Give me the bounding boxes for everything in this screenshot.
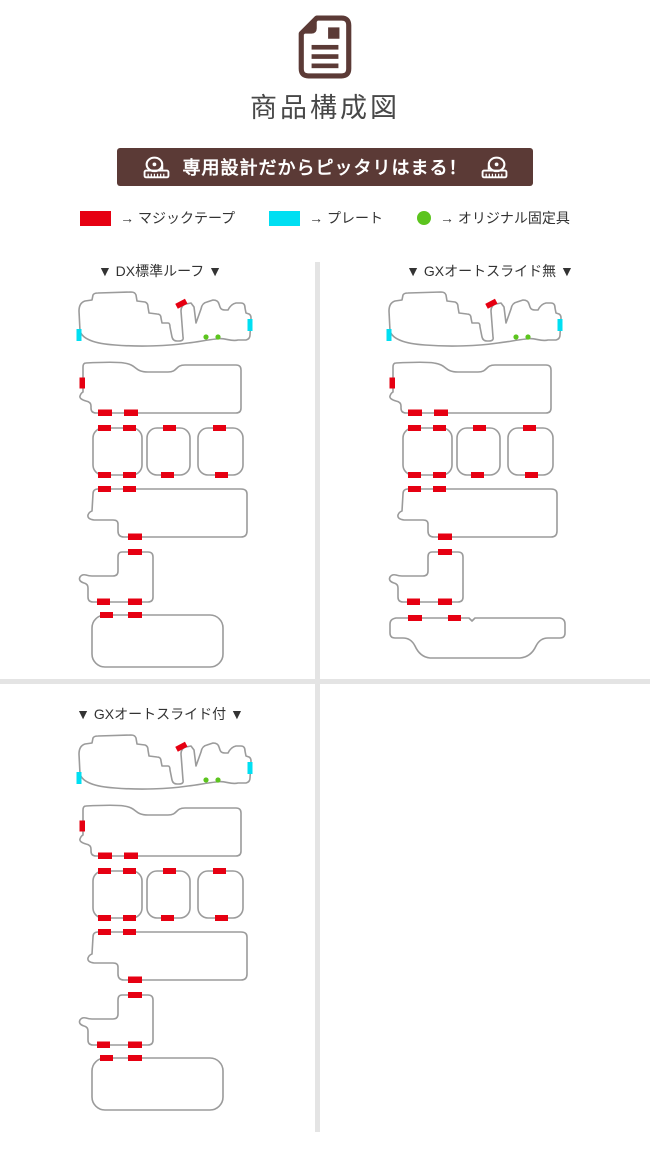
mat-outline (508, 428, 553, 475)
mat-outline (93, 871, 142, 918)
velcro-marker (100, 1055, 113, 1061)
mat-outline (390, 618, 565, 658)
velcro-marker (98, 410, 112, 417)
document-icon (298, 15, 352, 79)
velcro-marker (163, 868, 176, 874)
mat-diagram-gx-autoslide (60, 728, 320, 1120)
mat-outline (93, 428, 142, 475)
velcro-marker (523, 425, 536, 431)
velcro-marker (124, 410, 138, 417)
velcro-marker (128, 534, 142, 541)
mat-outline (398, 489, 557, 537)
mat-outline (147, 428, 190, 475)
mat-outline (79, 292, 251, 346)
velcro-marker (98, 425, 111, 431)
plate-swatch (269, 211, 300, 226)
mat-outline (457, 428, 500, 475)
mat-outline (147, 871, 190, 918)
velcro-marker (100, 612, 113, 618)
legend-label: → オリジナル固定具 (440, 208, 570, 228)
velcro-marker (97, 599, 110, 606)
horizontal-divider (0, 679, 650, 684)
measuring-tape-icon (143, 156, 170, 179)
velcro-marker (128, 612, 142, 618)
mat-outline (389, 292, 561, 346)
legend-item-plate: → プレート (269, 208, 383, 228)
plate-marker (558, 319, 563, 331)
velcro-marker (128, 992, 142, 998)
legend-label: → プレート (309, 208, 383, 228)
section-title-gx-no-autoslide: ▼ GXオートスライド無 ▼ (330, 261, 650, 281)
velcro-marker (124, 853, 138, 860)
velcro-marker (128, 599, 142, 606)
plate-marker (248, 762, 253, 774)
velcro-marker (161, 472, 174, 478)
velcro-marker (434, 410, 448, 417)
velcro-marker (471, 472, 484, 478)
velcro-marker (438, 534, 452, 541)
product-configuration-page: 商品構成図 専用設計だからピッタリはまる！ → マジックテープ → プレート (0, 0, 650, 1154)
legend-label: → マジックテープ (120, 208, 235, 228)
velcro-marker (98, 853, 112, 860)
fixture-marker (215, 777, 220, 782)
fixture-marker (203, 334, 208, 339)
fixture-marker (203, 777, 208, 782)
velcro-marker (213, 425, 226, 431)
mat-outline (79, 735, 251, 789)
velcro-marker (128, 977, 142, 984)
velcro-marker (98, 472, 111, 478)
velcro-marker (98, 486, 111, 492)
mat-outline (390, 552, 464, 602)
velcro-marker (215, 915, 228, 921)
fixture-swatch (417, 211, 431, 225)
velcro-marker (97, 1042, 110, 1049)
velcro-marker (98, 929, 111, 935)
mat-diagram-gx-no-autoslide (370, 285, 630, 677)
velcro-marker (123, 425, 136, 431)
velcro-marker (215, 472, 228, 478)
fixture-marker (513, 334, 518, 339)
measuring-tape-icon (481, 156, 508, 179)
velcro-marker (525, 472, 538, 478)
mat-outline (198, 871, 243, 918)
page-title: 商品構成図 (0, 86, 650, 125)
legend-item-fixture: → オリジナル固定具 (417, 208, 570, 228)
plate-marker (387, 329, 392, 341)
mat-outline (198, 428, 243, 475)
velcro-marker (473, 425, 486, 431)
velcro-marker (123, 868, 136, 874)
velcro-marker (390, 378, 396, 389)
mat-diagram-dx-standard-roof (60, 285, 320, 677)
mat-outline (80, 552, 154, 602)
fixture-marker (215, 334, 220, 339)
velcro-marker (123, 915, 136, 921)
banner-text: 専用設計だからピッタリはまる！ (183, 154, 468, 180)
velcro-marker (438, 549, 452, 555)
fixture-marker (525, 334, 530, 339)
velcro-marker (408, 486, 421, 492)
mat-outline (390, 362, 551, 413)
velcro-marker (407, 599, 420, 606)
velcro-marker (438, 599, 452, 606)
velcro-marker (408, 472, 421, 478)
velcro-marker (123, 929, 136, 935)
velcro-marker (163, 425, 176, 431)
mat-outline (88, 932, 247, 980)
plate-marker (77, 772, 82, 784)
mat-outline (80, 805, 241, 856)
velcro-marker (98, 915, 111, 921)
velcro-marker (128, 549, 142, 555)
legend-item-velcro: → マジックテープ (80, 208, 235, 228)
mat-outline (92, 1058, 223, 1110)
mat-outline (92, 615, 223, 667)
velcro-marker (128, 1042, 142, 1049)
velcro-marker (433, 425, 446, 431)
section-title-dx-standard-roof: ▼ DX標準ルーフ ▼ (0, 261, 320, 281)
velcro-marker (433, 486, 446, 492)
velcro-marker (448, 615, 461, 621)
velcro-marker (213, 868, 226, 874)
section-title-gx-autoslide: ▼ GXオートスライド付 ▼ (0, 704, 320, 724)
mat-outline (403, 428, 452, 475)
velcro-marker (123, 472, 136, 478)
legend: → マジックテープ → プレート → オリジナル固定具 (0, 208, 650, 228)
velcro-swatch (80, 211, 111, 226)
velcro-marker (408, 410, 422, 417)
mat-outline (80, 362, 241, 413)
feature-banner: 専用設計だからピッタリはまる！ (117, 148, 533, 186)
plate-marker (248, 319, 253, 331)
mat-outline (88, 489, 247, 537)
velcro-marker (123, 486, 136, 492)
plate-marker (77, 329, 82, 341)
velcro-marker (98, 868, 111, 874)
velcro-marker (128, 1055, 142, 1061)
mat-outline (80, 995, 154, 1045)
velcro-marker (408, 425, 421, 431)
velcro-marker (80, 378, 86, 389)
velcro-marker (408, 615, 422, 621)
velcro-marker (161, 915, 174, 921)
velcro-marker (433, 472, 446, 478)
velcro-marker (80, 821, 86, 832)
